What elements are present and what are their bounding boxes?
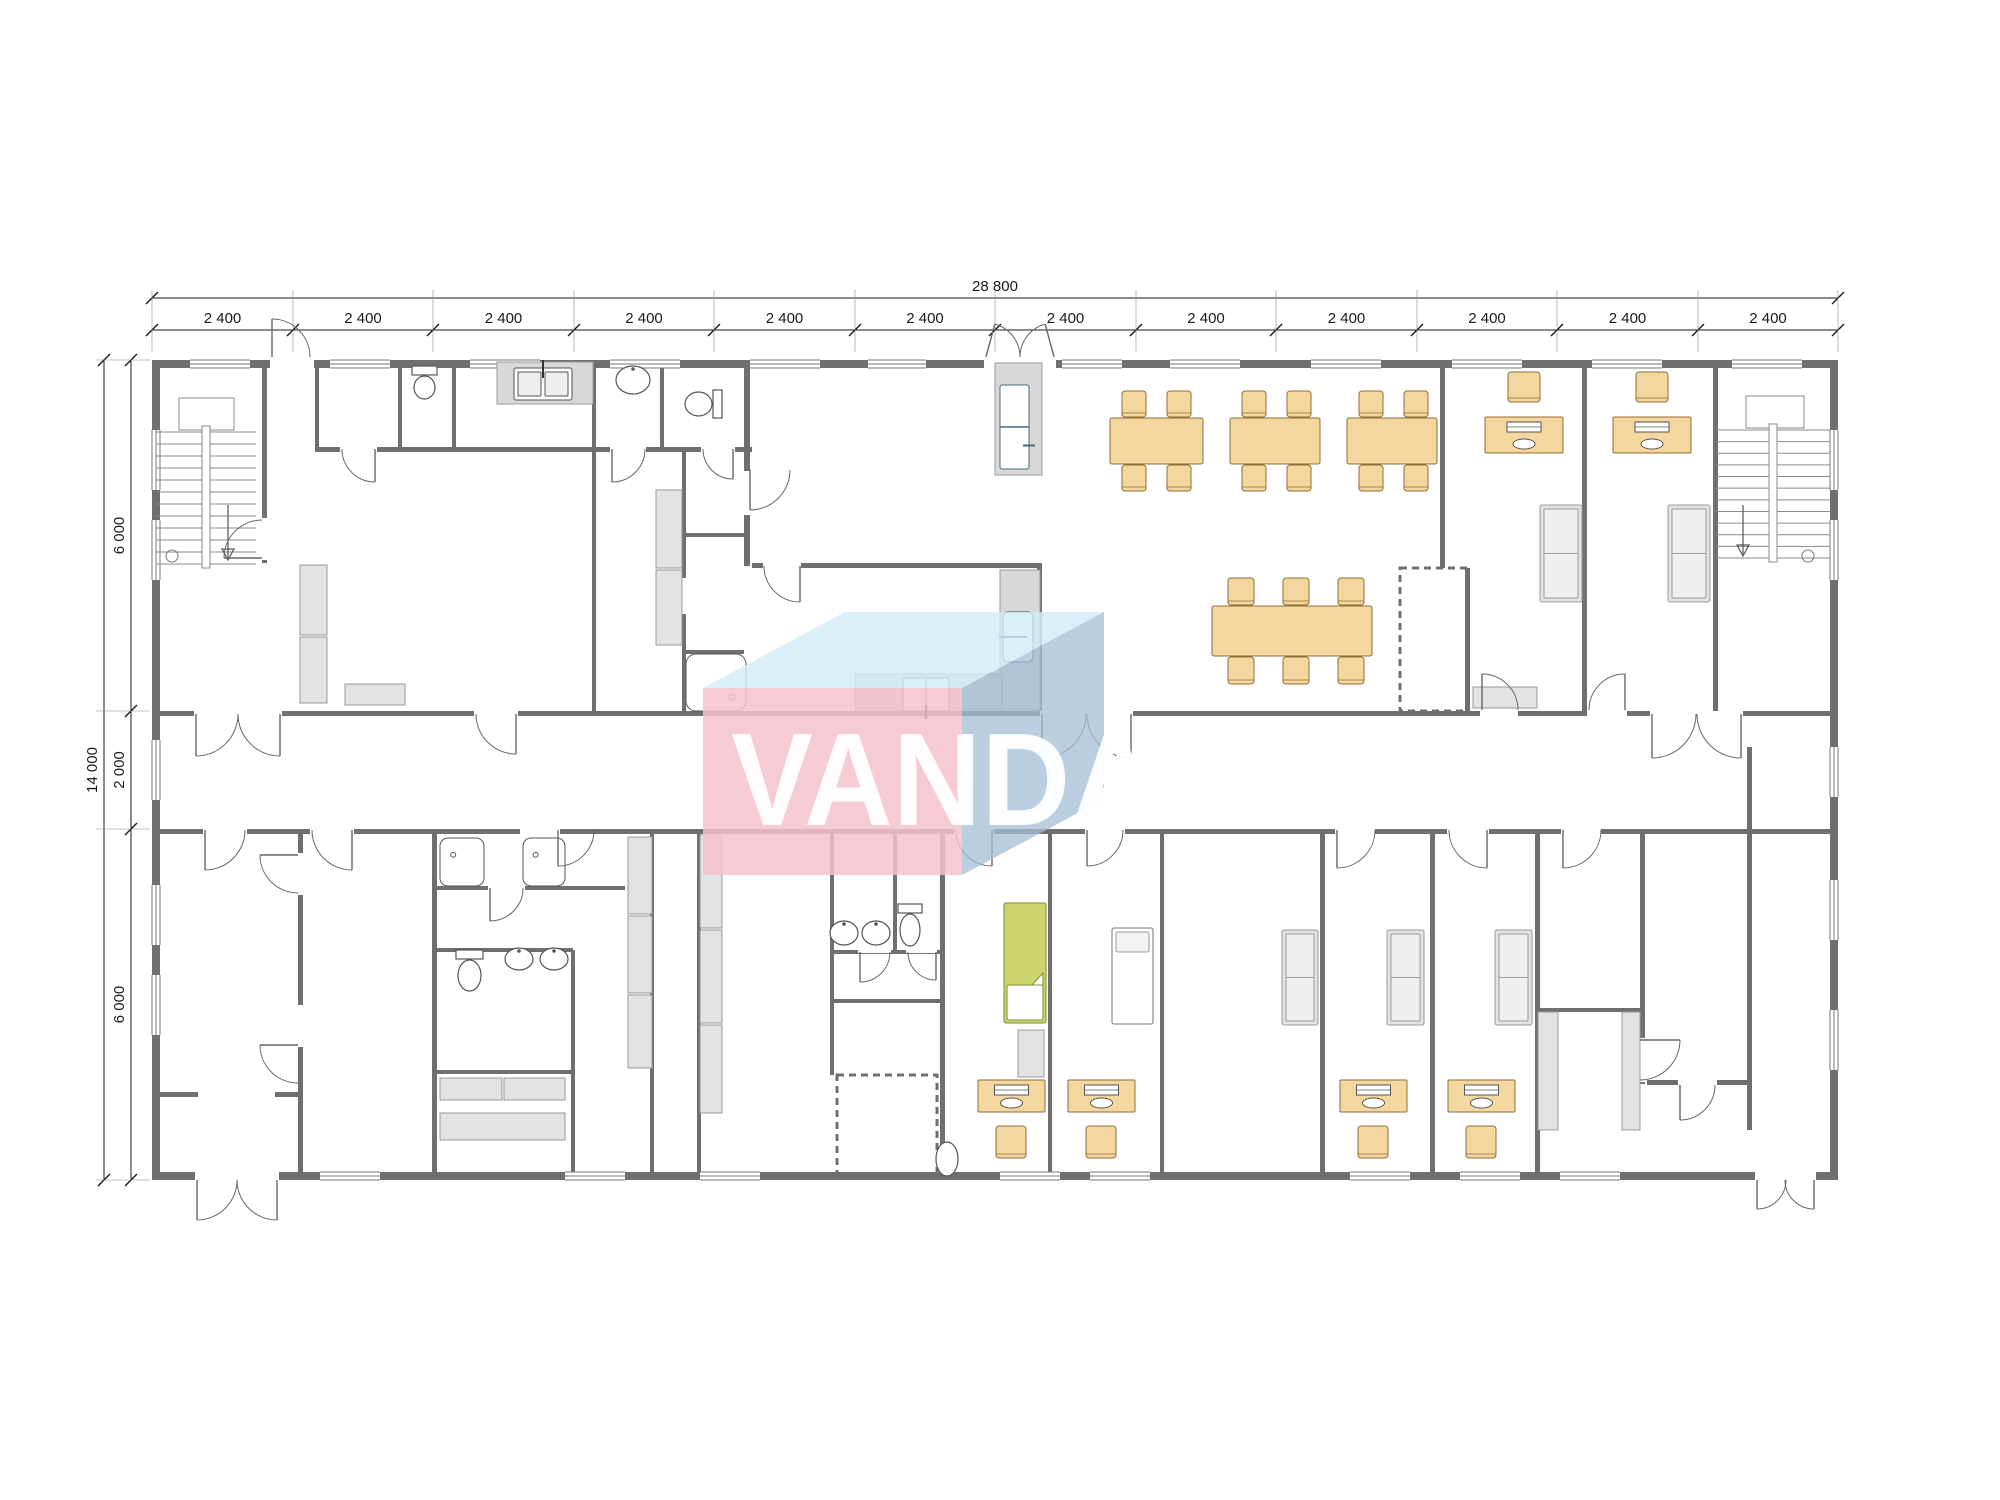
- chair: [1404, 391, 1428, 417]
- chair: [1508, 372, 1540, 402]
- door-arc: [312, 830, 352, 870]
- desk: [1485, 417, 1563, 453]
- chair: [1242, 465, 1266, 491]
- door-arc: [1652, 714, 1696, 758]
- door-gap: [310, 829, 354, 835]
- chair: [1338, 578, 1364, 605]
- dim-label: 2 400: [906, 310, 944, 327]
- door-arc: [1589, 674, 1625, 710]
- cabinet: [300, 565, 327, 635]
- cabinet: [440, 1113, 565, 1140]
- keyboard-icon: [1641, 439, 1663, 449]
- desk: [1448, 1080, 1515, 1112]
- wall: [744, 513, 750, 566]
- chair: [1122, 465, 1146, 491]
- wall: [398, 360, 402, 452]
- wall: [432, 829, 437, 1180]
- wall: [744, 360, 750, 473]
- door-gap: [270, 358, 314, 369]
- door-gap: [906, 948, 937, 953]
- toilet-tank: [898, 904, 922, 913]
- cab: [628, 995, 652, 1068]
- chair: [1167, 391, 1191, 417]
- stair-landing: [179, 398, 234, 430]
- wall: [940, 829, 945, 1180]
- toilet-bowl: [458, 960, 481, 991]
- door-gap: [1335, 829, 1375, 835]
- bedgreen: [1004, 903, 1046, 1023]
- door-arc: [1337, 830, 1375, 868]
- wall: [682, 533, 744, 537]
- toilet-bowl: [414, 376, 435, 399]
- sofa: [1540, 505, 1582, 602]
- desk: [1068, 1080, 1135, 1112]
- door-arc: [995, 324, 1020, 357]
- dim-label: 2 000: [111, 751, 128, 789]
- wall: [315, 447, 752, 452]
- toilet: [898, 904, 922, 946]
- cabinet: [628, 837, 652, 914]
- chair: [1636, 372, 1668, 402]
- door-arc: [1563, 830, 1601, 868]
- cabinet: [504, 1078, 565, 1100]
- chair: [1466, 1126, 1496, 1158]
- toilet-tank: [456, 950, 483, 959]
- table: [1347, 418, 1437, 464]
- sink-tap: [631, 367, 635, 371]
- chair: [1636, 372, 1668, 402]
- cab: [440, 1078, 502, 1100]
- chair: [1359, 391, 1383, 417]
- door-arc: [1697, 714, 1741, 758]
- door-gap: [1678, 1080, 1717, 1086]
- chair: [1283, 657, 1309, 684]
- chair: [1338, 657, 1364, 684]
- dim-label: 2 400: [625, 310, 663, 327]
- door-arc: [476, 714, 516, 754]
- dim-label: 2 400: [1468, 310, 1506, 327]
- door-gap: [1447, 829, 1489, 835]
- wall: [433, 886, 625, 890]
- sink: [616, 366, 650, 394]
- washer-drum: [545, 372, 568, 396]
- dining-table: [1347, 418, 1437, 464]
- sink-tap: [874, 922, 878, 926]
- wall: [1747, 747, 1752, 1130]
- cab: [1622, 1012, 1640, 1130]
- chair: [1466, 1126, 1496, 1158]
- door-gap: [340, 447, 377, 452]
- chair: [1287, 391, 1311, 417]
- door-arc: [860, 952, 890, 982]
- basin: [936, 1142, 958, 1176]
- door-arc: [1785, 1180, 1814, 1209]
- toilet: [456, 950, 483, 991]
- sink: [862, 921, 890, 945]
- door-gap: [763, 563, 801, 569]
- dim-label: 2 400: [485, 310, 523, 327]
- door-arc: [205, 830, 245, 870]
- wall: [1160, 829, 1164, 1180]
- chair: [1358, 1126, 1388, 1158]
- door-arc: [238, 714, 280, 756]
- cabinet: [628, 995, 652, 1068]
- toilet-tank: [412, 366, 437, 375]
- washer-drum: [518, 372, 541, 396]
- toilet-bowl: [900, 914, 920, 946]
- chair: [996, 1126, 1026, 1158]
- keyboard-icon: [1363, 1098, 1385, 1108]
- desk: [1340, 1080, 1407, 1112]
- chair: [1228, 578, 1254, 605]
- door-gap: [520, 829, 560, 835]
- wall: [660, 360, 664, 452]
- dim-label: 2 400: [204, 310, 242, 327]
- chair: [1086, 1126, 1116, 1158]
- cabinet: [1018, 1030, 1044, 1077]
- door-gap: [298, 1005, 304, 1047]
- toilet-bowl: [685, 392, 712, 416]
- door-arc: [703, 449, 733, 479]
- dim-label: 2 400: [1328, 310, 1366, 327]
- table: [1212, 606, 1372, 656]
- cabinet: [1622, 1012, 1640, 1130]
- chair: [1242, 391, 1266, 417]
- cab: [440, 1113, 565, 1140]
- cabinet: [628, 916, 652, 993]
- sink-tap: [552, 949, 556, 953]
- door-arc: [197, 1180, 237, 1220]
- table: [1110, 418, 1203, 464]
- floor-plan-drawing: 28 8002 4002 4002 4002 4002 4002 4002 40…: [0, 0, 2000, 1500]
- shower: [440, 838, 484, 886]
- chair: [1283, 578, 1309, 605]
- dining-table: [1230, 418, 1320, 464]
- door-arc: [272, 319, 310, 357]
- door-gap: [203, 829, 247, 835]
- dim-label: 2 400: [1187, 310, 1225, 327]
- bedwhite: [1112, 928, 1153, 1024]
- door-gap: [858, 948, 891, 953]
- door-leaf: [1045, 324, 1054, 357]
- cab: [504, 1078, 565, 1100]
- dim-label: 2 400: [1609, 310, 1647, 327]
- dim-label: 2 400: [766, 310, 804, 327]
- wall: [830, 999, 944, 1003]
- sink: [830, 921, 858, 945]
- door-gap: [1480, 711, 1518, 717]
- door-arc: [196, 714, 238, 756]
- cab: [1018, 1030, 1044, 1077]
- chair: [1508, 372, 1540, 402]
- door-arc: [1757, 1180, 1786, 1209]
- cabinet: [700, 1025, 722, 1113]
- door-arc: [342, 449, 375, 482]
- door-arc: [1680, 1085, 1715, 1120]
- wall: [275, 1092, 301, 1097]
- chair: [1287, 465, 1311, 491]
- chair: [1228, 657, 1254, 684]
- stair-stringer: [202, 426, 210, 568]
- wall: [800, 563, 1042, 568]
- door-gap: [488, 886, 525, 891]
- door-gap: [1561, 829, 1601, 835]
- keyboard-icon: [1001, 1098, 1023, 1108]
- watermark-text: VANDA: [731, 706, 1159, 853]
- chair: [1358, 1126, 1388, 1158]
- cabinet: [440, 1078, 502, 1100]
- door-gap: [610, 447, 646, 452]
- shaft-dashed-wall: [837, 1075, 937, 1176]
- door-gap: [1587, 711, 1627, 717]
- sofa: [1495, 930, 1532, 1025]
- cab: [345, 684, 405, 705]
- cabinet: [656, 570, 682, 645]
- chair: [1404, 465, 1428, 491]
- wall: [1535, 1008, 1643, 1012]
- cabinet: [300, 637, 327, 703]
- watermark-layer: VANDA: [703, 612, 1159, 875]
- sink-tap: [842, 922, 846, 926]
- cab: [300, 565, 327, 635]
- dining-table: [1110, 418, 1203, 464]
- door-arc: [237, 1180, 277, 1220]
- cab: [656, 570, 682, 645]
- bed-blanket: [1007, 985, 1043, 1020]
- wall: [1430, 829, 1435, 1180]
- cab: [300, 637, 327, 703]
- cabinet: [1538, 1012, 1558, 1130]
- wall: [1582, 360, 1587, 711]
- bed-pillow: [1116, 932, 1149, 952]
- door-arc: [260, 1045, 298, 1083]
- wall: [592, 360, 596, 711]
- door-gap: [701, 447, 735, 452]
- chair: [996, 1126, 1026, 1158]
- stairs: [1716, 424, 1830, 562]
- door-gap: [298, 853, 304, 895]
- wall: [1440, 360, 1445, 568]
- shaft-dashed-wall: [1400, 568, 1468, 711]
- dim-label: 6 000: [111, 517, 128, 555]
- sofa: [1282, 930, 1318, 1025]
- wall: [1320, 829, 1325, 1180]
- chair: [1086, 1126, 1116, 1158]
- shower-tray: [440, 838, 484, 886]
- cab: [1538, 1012, 1558, 1130]
- sink-tap: [517, 949, 521, 953]
- cab: [700, 1025, 722, 1113]
- sink: [505, 948, 533, 970]
- toilet-tank: [713, 390, 722, 418]
- wall: [571, 950, 575, 1180]
- door-arc: [764, 566, 800, 602]
- door-arc: [1020, 324, 1045, 357]
- door-arc: [490, 888, 523, 921]
- keyboard-icon: [1513, 439, 1535, 449]
- wall: [433, 1070, 573, 1074]
- cab: [628, 837, 652, 914]
- table: [1230, 418, 1320, 464]
- dim-label: 6 000: [111, 986, 128, 1024]
- sofa: [1668, 505, 1710, 602]
- dim-label: 2 400: [1749, 310, 1787, 327]
- cab: [628, 916, 652, 993]
- desk: [1613, 417, 1691, 453]
- stair-stringer: [1769, 424, 1777, 562]
- wall: [682, 650, 744, 654]
- sofa: [1387, 930, 1424, 1025]
- wall: [1048, 829, 1052, 1180]
- door-arc: [260, 855, 298, 893]
- door-arc: [750, 470, 790, 510]
- cab: [700, 930, 722, 1023]
- door-gap: [1640, 1038, 1646, 1082]
- cabinet: [345, 684, 405, 705]
- chair: [1122, 391, 1146, 417]
- toilet: [685, 390, 722, 418]
- wall: [452, 360, 456, 452]
- basin: [936, 1142, 958, 1176]
- cabinet: [700, 930, 722, 1023]
- wall: [152, 1092, 198, 1097]
- door-arc: [1449, 830, 1487, 868]
- keyboard-icon: [1091, 1098, 1113, 1108]
- dim-label: 2 400: [1047, 310, 1085, 327]
- dining-table: [1212, 606, 1372, 656]
- desk: [978, 1080, 1045, 1112]
- cab: [656, 490, 682, 568]
- keyboard-icon: [1471, 1098, 1493, 1108]
- door-gap: [682, 578, 687, 614]
- stair-rail-end: [1802, 550, 1814, 562]
- door-arc: [612, 449, 645, 482]
- wall: [315, 360, 319, 452]
- door-leaf: [986, 324, 995, 357]
- dim-label: 2 400: [344, 310, 382, 327]
- door-gap: [262, 518, 268, 560]
- floor-plan-page: 28 8002 4002 4002 4002 4002 4002 4002 40…: [0, 0, 2000, 1500]
- toilet: [412, 366, 437, 399]
- door-gap: [474, 711, 518, 717]
- chair: [1359, 465, 1383, 491]
- dim-label: 14 000: [84, 747, 101, 793]
- door-arc: [908, 952, 936, 980]
- cabinet: [656, 490, 682, 568]
- stairs: [156, 426, 256, 568]
- stair-landing: [1746, 396, 1804, 428]
- chair: [1167, 465, 1191, 491]
- sink: [540, 948, 568, 970]
- wall: [1713, 360, 1718, 711]
